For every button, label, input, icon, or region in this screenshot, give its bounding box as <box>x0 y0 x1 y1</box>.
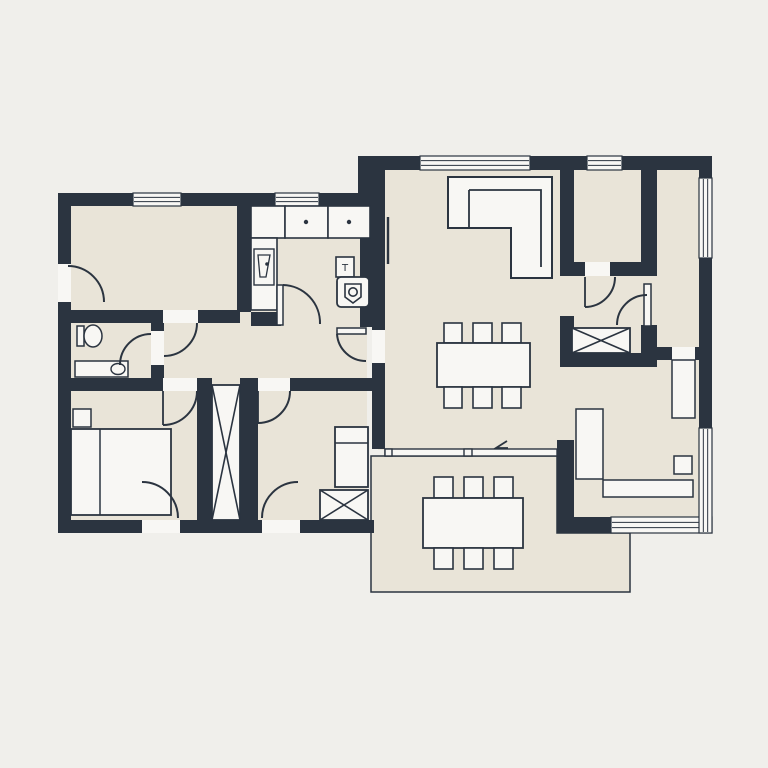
terrace-chair <box>434 477 453 498</box>
window-bedroom1-top <box>133 193 181 206</box>
kitchen-burner-dot-1 <box>304 220 308 224</box>
gardenroom-desk <box>576 409 603 479</box>
wall-bedroom2-top <box>290 378 372 391</box>
terrace-chair <box>494 477 513 498</box>
floor-plan-canvas: T <box>0 0 768 768</box>
wall-gardenroom-bottom <box>557 517 611 533</box>
gap-room1-door <box>163 310 198 323</box>
gap-corridor-gardenroom <box>672 347 695 360</box>
gardenroom-side-table <box>674 456 692 474</box>
window-living-top <box>420 156 530 170</box>
gap-trroom-door <box>585 262 610 276</box>
gardenroom-sideboard <box>603 480 693 497</box>
wall-room1-bottom <box>58 310 240 323</box>
wall-kitchen-divider <box>237 206 251 312</box>
toilet-tank <box>77 326 84 346</box>
wall-trroom-divider <box>560 170 574 267</box>
bed-single <box>335 427 368 487</box>
gap-bedroom2-door <box>258 378 290 391</box>
bed-double <box>71 429 171 515</box>
gap-wc-door <box>151 331 164 365</box>
gap-bedroom1-door <box>163 378 197 391</box>
dining-chair <box>502 387 521 408</box>
door-leaf-kitchen <box>277 285 283 325</box>
sliding-door-mullion <box>464 449 472 456</box>
window-kitchen-top <box>275 193 319 206</box>
floor-plan-page: T <box>0 0 768 768</box>
wall-closet-left <box>197 378 212 520</box>
door-leaf-entry-corridor <box>644 284 651 326</box>
terrace-chair <box>464 477 483 498</box>
dining-chair <box>473 323 492 343</box>
terrace-chair <box>494 548 513 569</box>
gap-bedroom1-garden-door <box>142 520 180 533</box>
dining-chair <box>502 323 521 343</box>
gap-bedroom2-garden-door <box>262 520 300 533</box>
kitchen-counter-1 <box>251 206 285 238</box>
wall-entry-bottom <box>560 353 657 367</box>
wall-corridor-divider-top <box>641 156 657 263</box>
dining-table <box>437 343 530 387</box>
wall-living-left <box>372 156 385 449</box>
wall-junction <box>358 170 372 195</box>
kitchen-sink-faucet <box>265 262 269 266</box>
window-corner-right <box>699 428 712 533</box>
dining-chair <box>444 387 462 408</box>
wall-closet-right <box>240 378 258 520</box>
terrace-chair <box>464 548 483 569</box>
gardenroom-door-leaf <box>672 360 695 418</box>
nightstand <box>73 409 91 427</box>
window-trroom-top <box>587 156 622 170</box>
dining-chair <box>444 323 462 343</box>
wall-right-block-top <box>358 156 712 170</box>
window-corridor-right <box>699 178 712 258</box>
wall-left-block-top <box>58 193 374 206</box>
wall-hall-bottom <box>58 378 163 391</box>
dining-chair <box>473 387 492 408</box>
toilet-bowl <box>84 325 102 347</box>
gap-living-hall-door <box>372 330 385 363</box>
sliding-door-mullion <box>385 449 392 456</box>
kitchen-burner-dot-2 <box>347 220 351 224</box>
wall-left-block-bottom <box>58 520 374 533</box>
terrace-chair <box>434 548 453 569</box>
terrace-table <box>423 498 523 548</box>
window-corner-bottom <box>611 517 712 533</box>
door-leaf-living-hall <box>337 328 366 334</box>
wall-left-block-left <box>58 193 71 533</box>
wc-sink-basin <box>111 364 125 375</box>
appliance-tag-label: T <box>341 263 349 274</box>
washer-door <box>349 288 357 296</box>
gap-entry-exterior-door <box>58 264 71 302</box>
